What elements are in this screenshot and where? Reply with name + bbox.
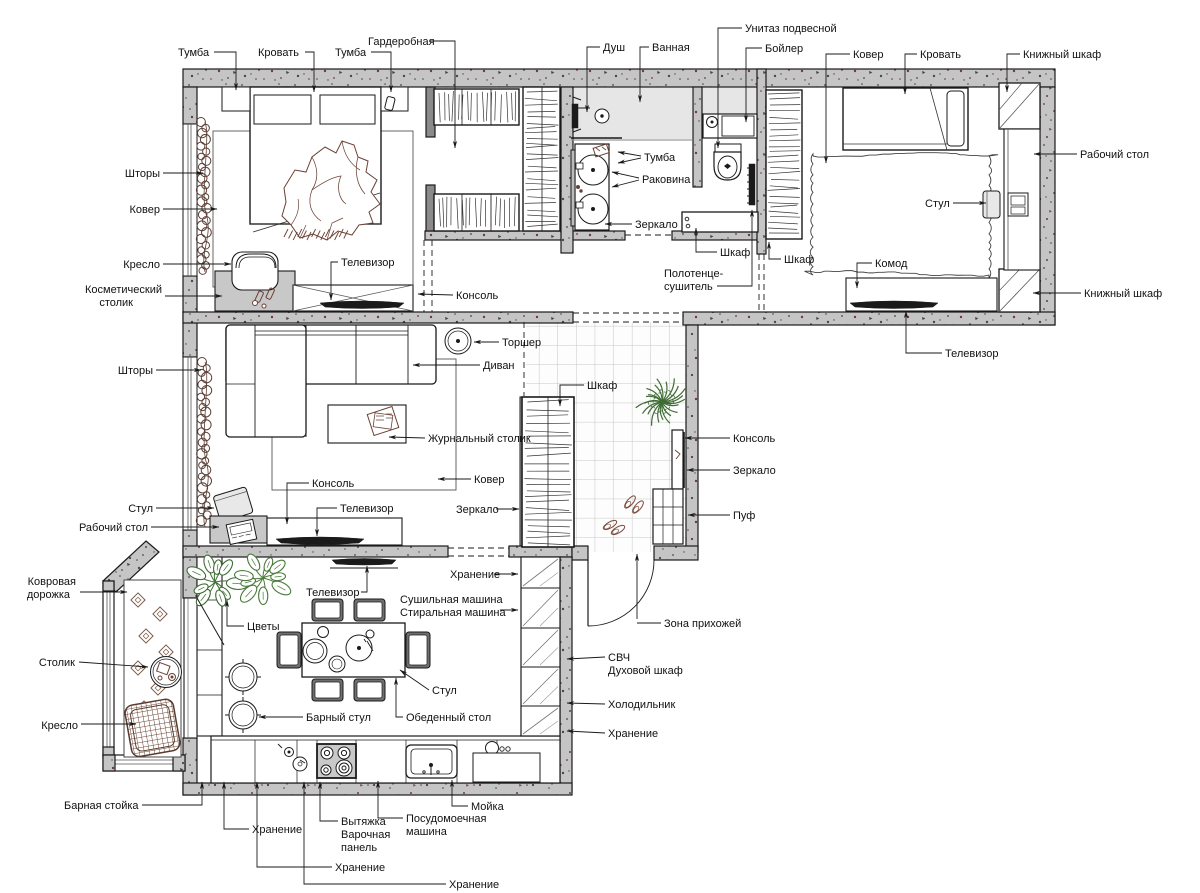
svg-text:Хранение: Хранение	[449, 879, 499, 891]
svg-text:Торшер: Торшер	[502, 337, 541, 349]
svg-text:Цветы: Цветы	[247, 621, 280, 633]
svg-text:Консоль: Консоль	[456, 290, 499, 302]
svg-text:Зеркало: Зеркало	[733, 465, 776, 477]
svg-text:Диван: Диван	[483, 360, 515, 372]
svg-text:Ванная: Ванная	[652, 42, 690, 54]
svg-text:Кресло: Кресло	[41, 720, 78, 732]
svg-text:Стул: Стул	[432, 685, 457, 697]
svg-text:Косметический: Косметический	[85, 284, 162, 296]
svg-text:Столик: Столик	[39, 657, 75, 669]
svg-text:Холодильник: Холодильник	[608, 699, 675, 711]
svg-text:Варочная: Варочная	[341, 829, 390, 841]
svg-text:Рабочий стол: Рабочий стол	[79, 522, 148, 534]
svg-text:Стиральная машина: Стиральная машина	[400, 607, 506, 619]
svg-text:Посудомоечная: Посудомоечная	[406, 813, 487, 825]
svg-text:Барная стойка: Барная стойка	[64, 800, 139, 812]
svg-text:Телевизор: Телевизор	[340, 503, 394, 515]
svg-text:Зеркало: Зеркало	[635, 219, 678, 231]
svg-text:Кровать: Кровать	[258, 47, 299, 59]
svg-text:СВЧ: СВЧ	[608, 652, 630, 664]
svg-text:Телевизор: Телевизор	[306, 587, 360, 599]
svg-text:Полотенце-: Полотенце-	[664, 268, 724, 280]
svg-text:Унитаз подвесной: Унитаз подвесной	[745, 23, 837, 35]
svg-text:Тумба: Тумба	[335, 47, 367, 59]
svg-text:Хранение: Хранение	[252, 824, 302, 836]
svg-text:Хранение: Хранение	[608, 728, 658, 740]
svg-text:Шторы: Шторы	[125, 168, 160, 180]
svg-text:Зона прихожей: Зона прихожей	[664, 618, 741, 630]
svg-text:Комод: Комод	[875, 258, 908, 270]
svg-text:Хранение: Хранение	[450, 569, 500, 581]
svg-text:Хранение: Хранение	[335, 862, 385, 874]
svg-text:Телевизор: Телевизор	[341, 257, 395, 269]
svg-text:Обеденный стол: Обеденный стол	[406, 712, 491, 724]
svg-text:Шкаф: Шкаф	[720, 247, 750, 259]
svg-text:Шкаф: Шкаф	[784, 254, 814, 266]
svg-text:Консоль: Консоль	[312, 478, 355, 490]
svg-text:машина: машина	[406, 826, 448, 838]
svg-text:Кресло: Кресло	[123, 259, 160, 271]
svg-text:Раковина: Раковина	[642, 174, 691, 186]
svg-text:Книжный шкаф: Книжный шкаф	[1023, 49, 1101, 61]
svg-text:Журнальный столик: Журнальный столик	[428, 433, 531, 445]
svg-text:Сушильная машина: Сушильная машина	[400, 594, 503, 606]
svg-text:панель: панель	[341, 842, 377, 854]
svg-text:Мойка: Мойка	[471, 801, 505, 813]
svg-text:Шторы: Шторы	[118, 365, 153, 377]
svg-text:Зеркало: Зеркало	[456, 504, 499, 516]
svg-text:Телевизор: Телевизор	[945, 348, 999, 360]
svg-text:Гардеробная: Гардеробная	[368, 36, 435, 48]
svg-text:Ковер: Ковер	[474, 474, 504, 486]
svg-text:Пуф: Пуф	[733, 510, 755, 522]
svg-text:Стул: Стул	[128, 503, 153, 515]
svg-text:Шкаф: Шкаф	[587, 380, 617, 392]
svg-text:Духовой шкаф: Духовой шкаф	[608, 665, 683, 677]
svg-text:Барный стул: Барный стул	[306, 712, 371, 724]
svg-text:столик: столик	[99, 297, 133, 309]
svg-text:Рабочий стол: Рабочий стол	[1080, 149, 1149, 161]
svg-text:Ковер: Ковер	[130, 204, 160, 216]
svg-text:сушитель: сушитель	[664, 281, 713, 293]
svg-text:Ковер: Ковер	[853, 49, 883, 61]
svg-text:Тумба: Тумба	[644, 152, 676, 164]
svg-text:Тумба: Тумба	[178, 47, 210, 59]
svg-text:Книжный шкаф: Книжный шкаф	[1084, 288, 1162, 300]
svg-text:Ковровая: Ковровая	[28, 576, 76, 588]
svg-text:Кровать: Кровать	[920, 49, 961, 61]
svg-text:Бойлер: Бойлер	[765, 43, 803, 55]
svg-text:дорожка: дорожка	[27, 589, 71, 601]
svg-text:Консоль: Консоль	[733, 433, 776, 445]
svg-text:Стул: Стул	[925, 198, 950, 210]
svg-text:Душ: Душ	[603, 42, 625, 54]
